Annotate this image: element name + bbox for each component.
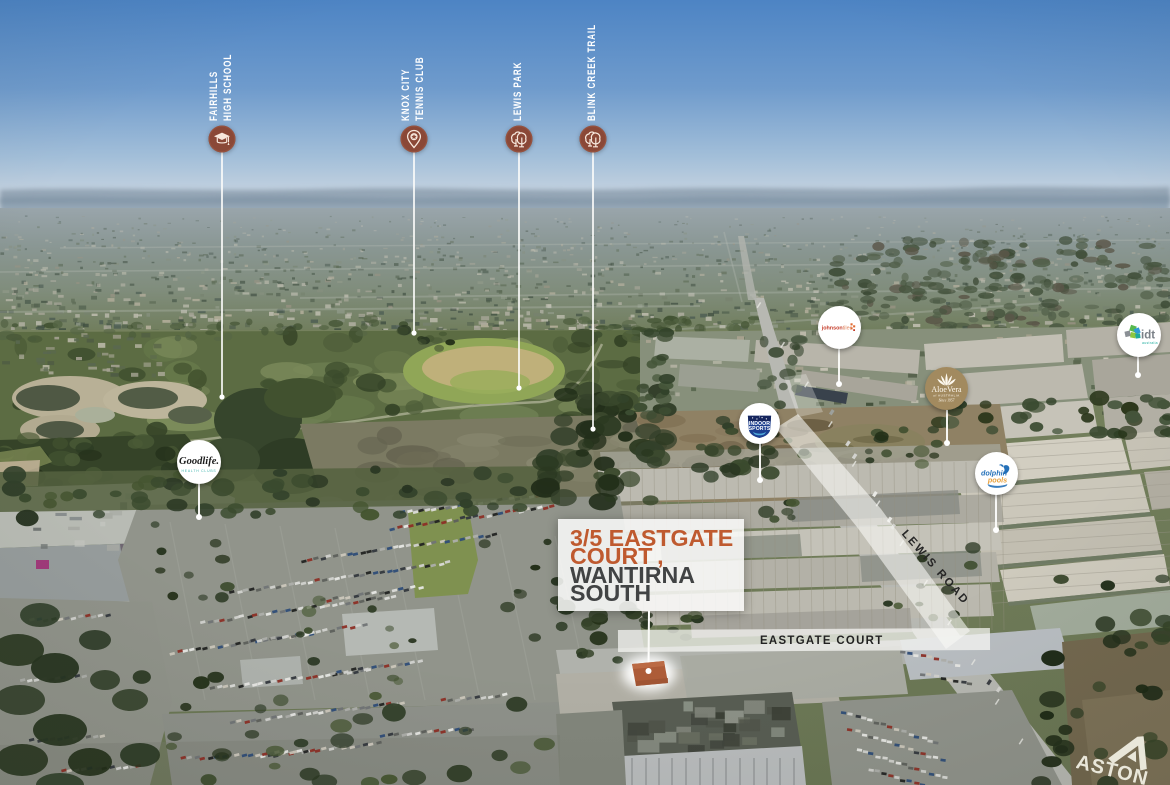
svg-text:pools: pools bbox=[986, 476, 1006, 485]
svg-text:idt: idt bbox=[1141, 329, 1155, 341]
svg-text:australia: australia bbox=[1142, 341, 1158, 345]
svg-text:SPORTS: SPORTS bbox=[748, 426, 770, 432]
svg-text:HEALTH CLUBS: HEALTH CLUBS bbox=[182, 469, 217, 473]
svg-text:johnsontiles: johnsontiles bbox=[820, 326, 852, 332]
svg-text:of AUSTRALIA: of AUSTRALIA bbox=[933, 394, 960, 398]
svg-text:Since 1957: Since 1957 bbox=[938, 399, 954, 403]
svg-text:Goodlife.: Goodlife. bbox=[179, 456, 219, 467]
